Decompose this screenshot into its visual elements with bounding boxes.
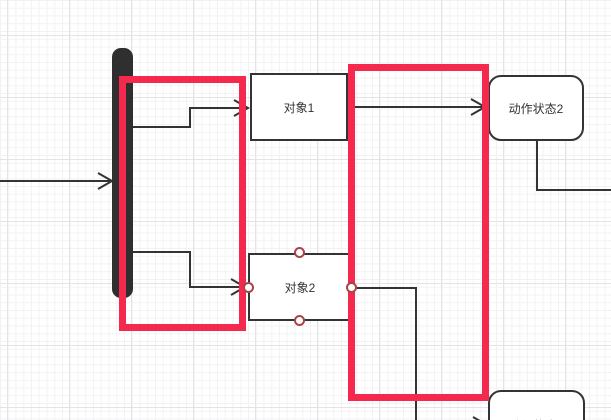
node-object1-label: 对象1 (284, 99, 315, 116)
connection-point-object2-bottom[interactable] (294, 315, 305, 326)
connection-point-object2-top[interactable] (294, 247, 305, 258)
node-action-state-bottom[interactable]: 动作状态1 (488, 390, 585, 420)
node-object2-label: 对象2 (285, 279, 316, 296)
connection-point-object2-left[interactable] (243, 282, 254, 293)
selection-highlight-1[interactable] (119, 76, 246, 331)
node-action-state-2[interactable]: 动作状态2 (488, 75, 584, 141)
node-object2[interactable]: 对象2 (248, 253, 352, 321)
node-action-state-2-label: 动作状态2 (509, 100, 564, 117)
edges-layer (0, 0, 611, 420)
selection-highlight-2[interactable] (348, 64, 489, 401)
edge-actionstate2-out-right[interactable] (537, 141, 611, 190)
node-action-state-bottom-label: 动作状态1 (509, 417, 564, 420)
diagram-canvas[interactable]: 对象1 对象2 动作状态2 动作状态1 (0, 0, 611, 420)
node-object1[interactable]: 对象1 (250, 73, 348, 141)
connection-point-object2-right[interactable] (346, 282, 357, 293)
